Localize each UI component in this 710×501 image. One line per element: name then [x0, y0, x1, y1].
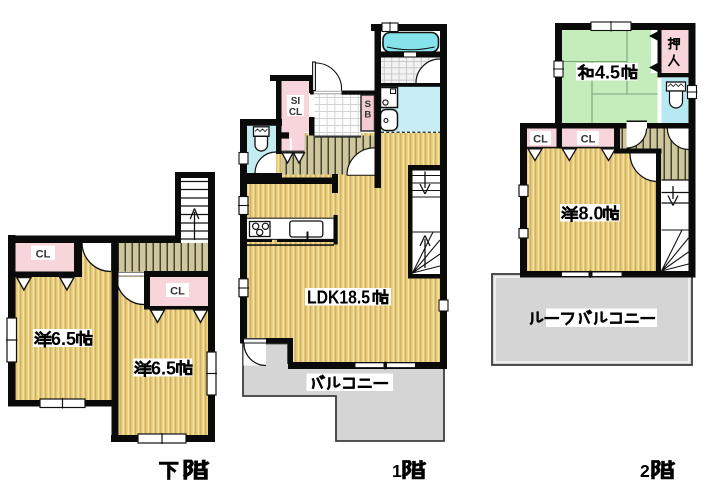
svg-text:CL: CL: [36, 249, 51, 261]
svg-text:CL: CL: [581, 134, 596, 146]
svg-text:1: 1: [392, 461, 402, 481]
svg-text:LDK18.5: LDK18.5: [307, 288, 370, 308]
svg-text:8.0: 8.0: [579, 204, 604, 224]
svg-text:SI: SI: [291, 96, 301, 107]
svg-text:2: 2: [640, 461, 650, 481]
svg-text:CL: CL: [533, 134, 548, 146]
svg-text:B: B: [364, 110, 371, 121]
svg-text:6.5: 6.5: [151, 359, 176, 379]
svg-text:CL: CL: [170, 286, 185, 298]
svg-text:CL: CL: [289, 107, 302, 118]
svg-text:6.5: 6.5: [51, 329, 76, 349]
svg-text:4.5: 4.5: [595, 63, 620, 83]
svg-text:S: S: [365, 99, 371, 110]
